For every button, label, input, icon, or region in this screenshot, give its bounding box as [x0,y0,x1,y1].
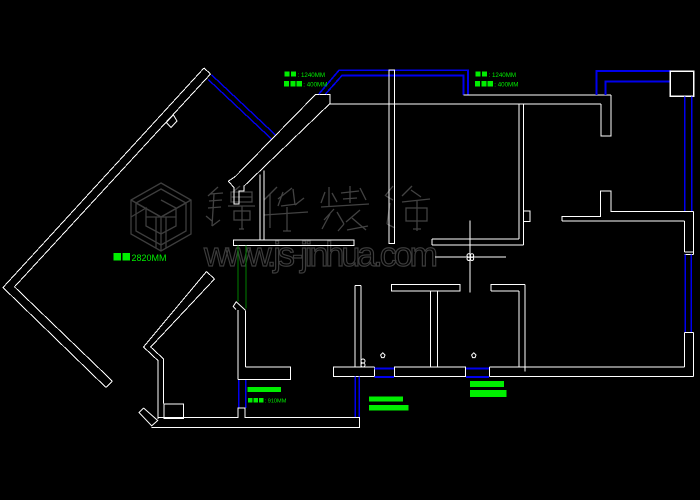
svg-text:: 1240MM: : 1240MM [298,72,326,79]
svg-text:: 400MM: : 400MM [303,82,327,89]
svg-text:: 400MM: : 400MM [494,82,518,89]
svg-text:: 1240MM: : 1240MM [489,72,517,79]
svg-text:2820MM: 2820MM [132,253,167,263]
svg-text:: 910MM: : 910MM [265,398,287,404]
